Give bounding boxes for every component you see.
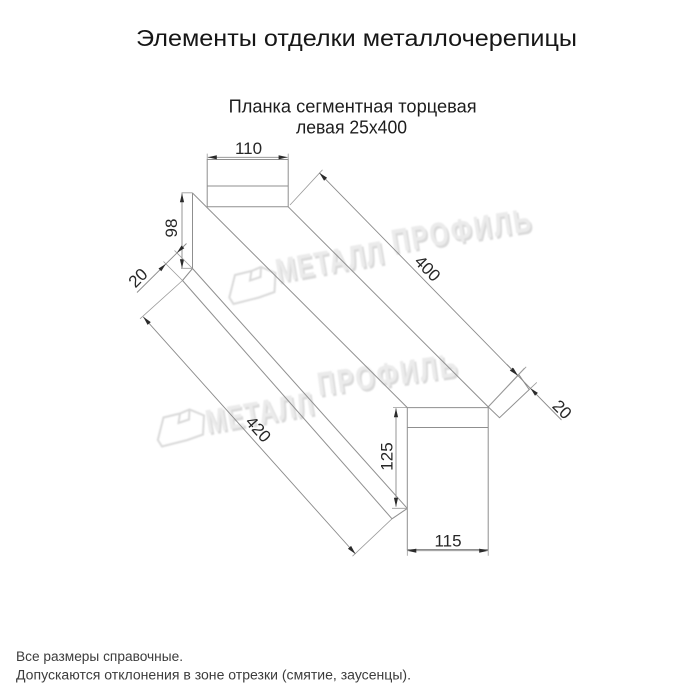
svg-text:левая 25х400: левая 25х400 [296, 118, 407, 138]
svg-text:115: 115 [434, 532, 461, 551]
svg-text:Планка сегментная торцевая: Планка сегментная торцевая [229, 97, 477, 117]
svg-text:Допускаются отклонения в зоне: Допускаются отклонения в зоне отрезки (с… [16, 668, 411, 683]
svg-text:98: 98 [162, 219, 181, 238]
svg-text:Все размеры справочные.: Все размеры справочные. [16, 649, 183, 664]
svg-text:Элементы отделки металлочерепи: Элементы отделки металлочерепицы [136, 25, 577, 51]
svg-text:125: 125 [378, 442, 397, 470]
svg-text:110: 110 [235, 139, 262, 158]
